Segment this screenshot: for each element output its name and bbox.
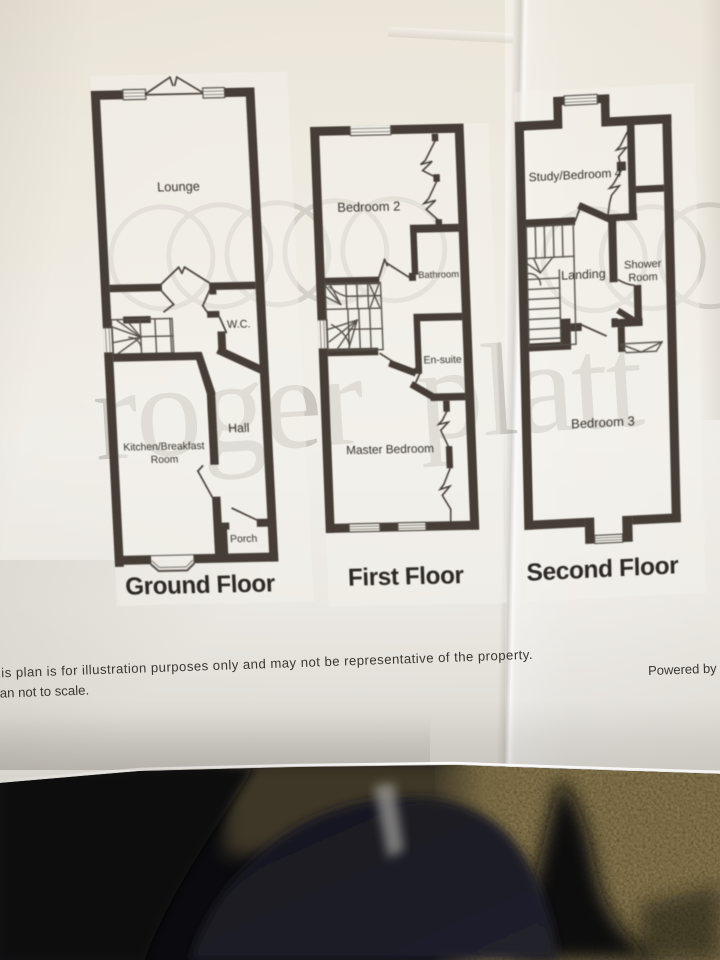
svg-text:First Floor: First Floor <box>347 562 464 592</box>
svg-text:Room: Room <box>151 453 179 466</box>
svg-text:Porch: Porch <box>230 533 258 546</box>
svg-text:Room: Room <box>628 271 658 284</box>
svg-text:Landing: Landing <box>561 267 606 283</box>
svg-text:Bedroom 3: Bedroom 3 <box>571 413 635 431</box>
svg-text:Kitchen/Breakfast: Kitchen/Breakfast <box>123 440 205 454</box>
svg-text:Lounge: Lounge <box>157 179 201 195</box>
svg-text:W.C.: W.C. <box>227 318 251 331</box>
svg-text:Bathroom: Bathroom <box>418 270 459 282</box>
svg-text:Hall: Hall <box>228 421 250 435</box>
svg-text:Bedroom 2: Bedroom 2 <box>337 199 401 215</box>
svg-text:Shower: Shower <box>624 258 662 272</box>
svg-text:Master Bedroom: Master Bedroom <box>345 442 433 458</box>
svg-text:Ground Floor: Ground Floor <box>125 571 277 601</box>
svg-text:En-suite: En-suite <box>423 354 462 367</box>
